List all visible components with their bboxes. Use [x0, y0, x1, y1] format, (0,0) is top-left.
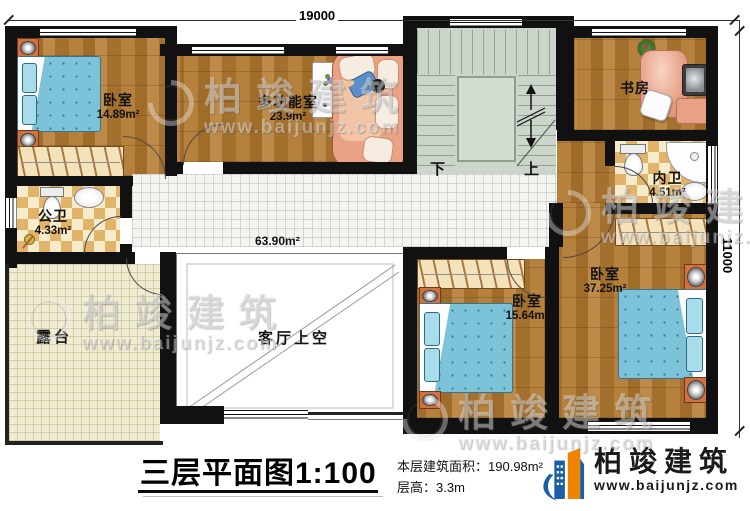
brand-block: 柏竣建筑 www.baijunjz.com — [538, 445, 739, 503]
room-name: 卧室 — [560, 266, 650, 283]
monitor-screen — [686, 68, 704, 92]
stairs-up-label: 上 — [524, 158, 539, 179]
wall — [403, 247, 507, 259]
dimension-top-value: 19000 — [296, 8, 338, 23]
wall — [557, 130, 718, 141]
stairwell — [417, 28, 556, 174]
void-label: 客厅上空 — [258, 327, 330, 348]
bedroom3-bed — [618, 289, 708, 379]
hall-floor — [132, 174, 557, 247]
wall — [165, 162, 183, 174]
plan-title-name: 三层平面图 — [140, 457, 295, 490]
room-area: 4.33m² — [18, 225, 88, 239]
room-area: 4.51m² — [625, 187, 710, 201]
bedroom2-nightstand-bottom — [419, 391, 441, 409]
nightstand-knob — [687, 267, 705, 287]
window — [192, 46, 284, 54]
brand-name: 柏竣建筑 — [594, 445, 739, 479]
bedroom2-label: 卧室 15.64m² — [482, 293, 572, 324]
floor-area-label: 本层建筑面积： — [397, 459, 488, 474]
window — [588, 421, 690, 431]
room-name: 书房 — [595, 80, 675, 97]
stair-direction-arrows — [417, 28, 556, 174]
terrace-label: 露台 — [36, 326, 72, 347]
bed-pillow — [686, 336, 703, 372]
room-name: 卧室 — [70, 92, 166, 109]
shower-drain — [690, 152, 699, 161]
wall — [5, 252, 135, 264]
wall — [120, 176, 132, 218]
wall — [706, 26, 718, 434]
floor-area-line: 本层建筑面积：190.98m² — [397, 457, 543, 478]
room-area: 23.9m² — [238, 111, 338, 125]
window — [224, 410, 308, 420]
brand-url: www.baijunjz.com — [594, 477, 739, 493]
bedroom1-label: 卧室 14.89m² — [70, 92, 166, 123]
wall — [556, 16, 574, 130]
public-bath-sink — [74, 187, 104, 208]
room-name: 内卫 — [625, 170, 710, 187]
nightstand-knob — [687, 380, 705, 400]
wall — [605, 141, 615, 166]
floor-area-value: 190.98m² — [488, 459, 543, 474]
wall — [5, 26, 17, 268]
room-name: 多功能室 — [238, 94, 338, 111]
room-name: 公卫 — [18, 208, 88, 225]
nightstand-knob — [422, 290, 438, 302]
computer-monitor — [682, 64, 708, 96]
wall — [545, 247, 559, 418]
nightstand-knob — [422, 394, 438, 406]
brand-text: 柏竣建筑 www.baijunjz.com — [594, 445, 739, 493]
bedroom3-nightstand-top — [684, 264, 708, 290]
terrace-wall — [5, 441, 163, 445]
floor-height-value: 3.3m — [436, 480, 465, 495]
nightstand-knob — [20, 41, 36, 55]
plan-title-scale: 1:100 — [295, 457, 377, 490]
room-area: 14.89m² — [70, 109, 166, 123]
study-side-table — [676, 98, 710, 124]
window — [40, 28, 136, 36]
wall — [549, 203, 563, 247]
sofa-cushion — [375, 95, 399, 129]
wall — [605, 203, 718, 214]
bedroom3-label: 卧室 37.25m² — [560, 266, 650, 297]
wall — [403, 247, 417, 418]
wall — [160, 406, 224, 424]
wall — [403, 28, 417, 174]
multiroom-label: 多功能室 23.9m² — [238, 94, 338, 125]
bedroom3-nightstand-bottom — [684, 377, 708, 403]
bed-pillow — [424, 348, 440, 382]
room-area: 37.25m² — [560, 283, 650, 297]
bedroom1-nightstand-top — [17, 38, 39, 58]
sofa — [332, 50, 404, 168]
dimension-right-value: 11000 — [720, 235, 735, 276]
plan-title: 三层平面图1:100 — [140, 448, 377, 492]
terrace-wall — [5, 264, 9, 441]
plan-info: 本层建筑面积：190.98m² 层高：3.3m — [397, 457, 543, 499]
floor-height-label: 层高： — [397, 480, 436, 495]
title-underline-shadow — [143, 496, 383, 497]
bed-pillow — [22, 95, 37, 125]
terrace-floor — [9, 264, 160, 441]
bedroom3-wardrobe — [615, 218, 708, 246]
inner-bath-label: 内卫 4.51m² — [625, 170, 710, 201]
dimension-line-top — [8, 20, 740, 21]
wall — [308, 412, 403, 415]
wall — [165, 38, 177, 176]
bed-pillow — [22, 63, 37, 93]
room-area: 15.64m² — [482, 310, 572, 324]
nightstand-knob — [20, 133, 36, 147]
hall-area-label: 63.90m² — [255, 234, 300, 248]
floor-height-line: 层高：3.3m — [397, 478, 543, 499]
window — [336, 46, 388, 54]
person-head — [371, 79, 385, 93]
window — [5, 198, 17, 228]
wall — [5, 176, 133, 186]
bed-pillow — [424, 312, 440, 346]
window — [592, 28, 686, 36]
wall — [223, 162, 415, 174]
brand-logo-icon — [538, 445, 586, 503]
floor-plan: 卧室 14.89m² 多功能室 23.9m² 书房 内卫 4.51m² 公卫 4… — [0, 0, 750, 511]
bedroom1-wardrobe — [17, 146, 124, 178]
study-label: 书房 — [595, 80, 675, 97]
dimension-line-right — [739, 20, 740, 438]
stairs-down-label: 下 — [430, 158, 445, 179]
title-underline — [138, 490, 378, 493]
sofa-cushion — [361, 135, 394, 165]
bed-pillow — [686, 298, 703, 334]
public-bath-label: 公卫 4.33m² — [18, 208, 88, 239]
room-name: 卧室 — [482, 293, 572, 310]
